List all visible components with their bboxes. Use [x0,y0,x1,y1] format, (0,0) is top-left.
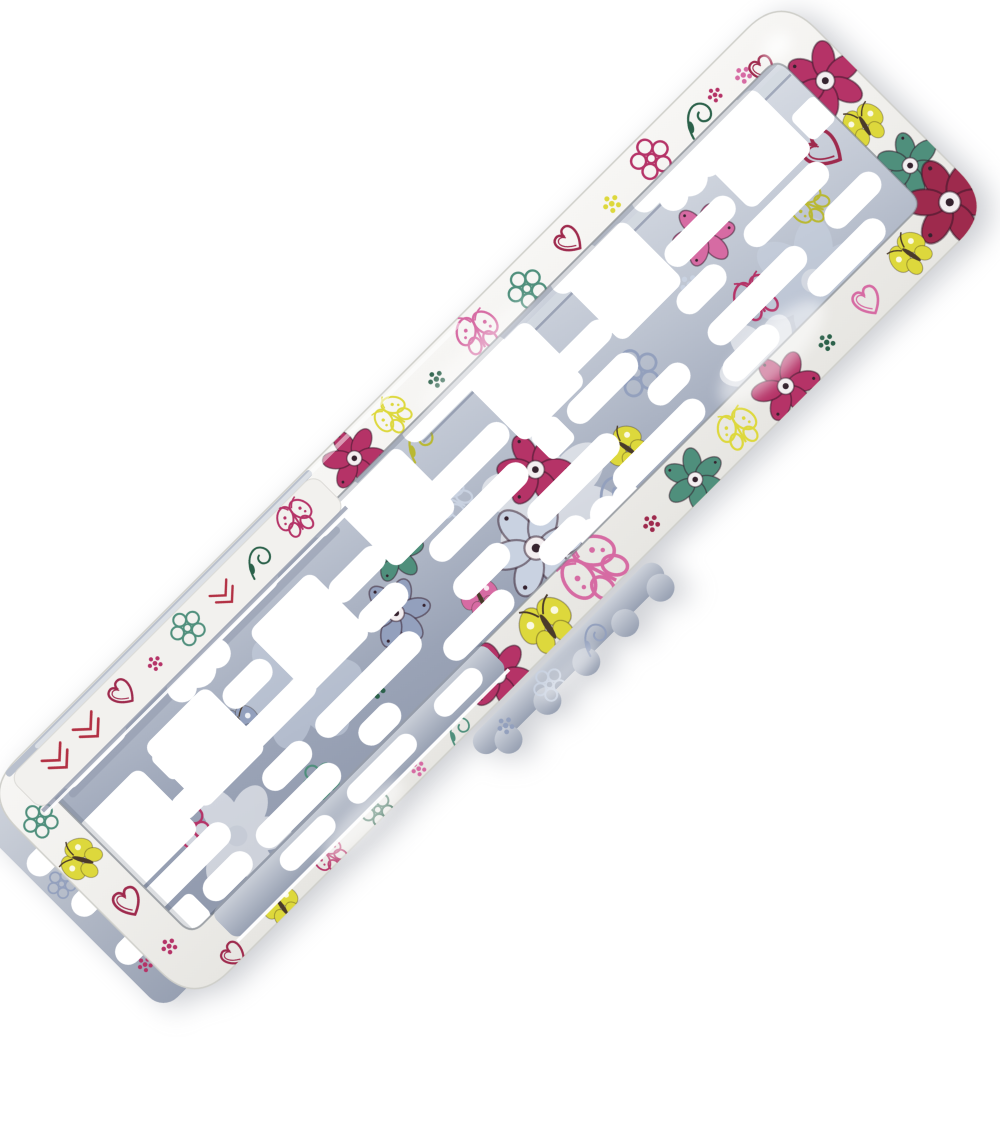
photo-background [0,0,1000,1000]
license-plate-frame-product [0,0,1000,1126]
plate-perforations [0,53,935,996]
